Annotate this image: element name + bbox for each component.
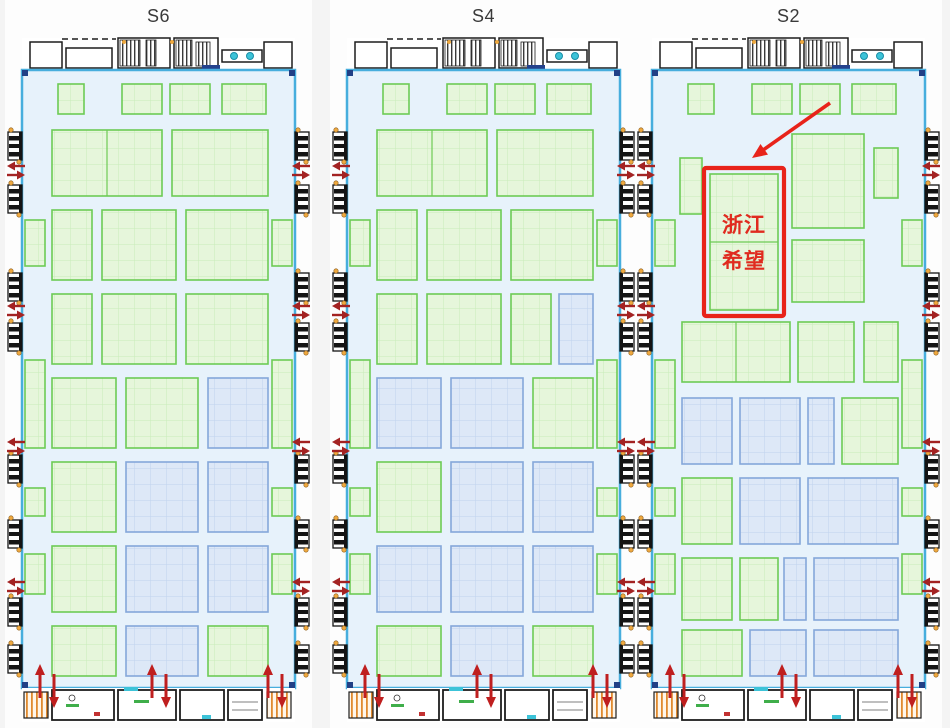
navy-fixture [527,65,545,69]
stairs-icon [267,692,291,718]
booth [383,84,409,114]
door-icon [925,181,939,217]
door-icon [295,181,309,217]
booth [750,630,806,676]
booth [350,554,370,594]
door-icon [295,128,309,164]
door-icon [8,269,22,305]
booth [740,398,800,464]
booth [792,134,864,228]
stairs-icon [897,692,921,718]
top-facilities [652,38,925,70]
booth [597,554,617,594]
booth [52,210,92,280]
booth [350,220,370,266]
booth [682,398,732,464]
door-icon [333,594,347,630]
door-icon [295,594,309,630]
door-icon [295,451,309,487]
booth [52,462,116,532]
door-icon [8,451,22,487]
bottom-facilities [347,687,620,722]
booth [740,558,778,620]
booth [852,84,896,114]
booth [122,84,162,114]
booth [842,398,898,464]
booth [902,488,922,516]
booth [377,210,417,280]
door-icon [638,594,652,630]
door-icon [333,641,347,677]
booth [451,378,523,448]
door-icon [638,128,652,164]
door-icon [638,319,652,355]
hall-title-s6: S6 [6,6,311,27]
door-icon [620,641,634,677]
floorplan-s2: 浙江希望 [636,36,941,728]
booth [25,220,45,266]
booth [272,554,292,594]
door-icon [295,641,309,677]
booth [814,558,898,620]
booth [170,84,210,114]
door-icon [638,516,652,552]
stairs-icon [349,692,373,718]
booth [186,294,268,364]
door-icon [295,319,309,355]
door-icon [8,516,22,552]
booth [208,626,268,676]
booth [208,378,268,448]
booth [126,626,198,676]
booth [52,130,162,196]
door-icon [925,128,939,164]
booth [427,210,501,280]
booth [126,462,198,532]
door-icon [925,269,939,305]
booth [752,84,792,114]
booth [597,220,617,266]
booth [597,488,617,516]
booth [350,488,370,516]
booth [655,554,675,594]
door-icon [620,128,634,164]
booth [126,546,198,612]
door-icon [8,594,22,630]
booth [874,148,898,198]
booth [102,294,176,364]
door-icon [925,451,939,487]
booth [655,220,675,266]
door-icon [8,128,22,164]
booth [451,462,523,532]
stairs-icon [592,692,616,718]
restroom-fixture-icon [861,53,868,60]
booth [533,378,593,448]
booth [377,546,441,612]
booth [740,478,800,544]
booth [52,378,116,448]
door-icon [8,181,22,217]
booth [25,488,45,516]
booth [186,210,268,280]
booth [25,360,45,448]
booth [377,294,417,364]
stairs-icon [654,692,678,718]
door-icon [925,319,939,355]
door-icon [925,516,939,552]
booth [814,630,898,676]
door-icon [295,269,309,305]
booth [680,158,702,214]
booth [272,220,292,266]
booth [792,240,864,302]
booth [25,554,45,594]
booth [511,210,593,280]
booth [495,84,535,114]
booth [682,478,732,544]
booth [688,84,714,114]
booth [547,84,591,114]
booth [350,360,370,448]
booth [377,626,441,676]
door-icon [333,319,347,355]
booth [427,294,501,364]
top-facilities [347,38,620,70]
booth [272,488,292,516]
booth [377,378,441,448]
door-icon [925,594,939,630]
booth [451,626,523,676]
booth [447,84,487,114]
booth [559,294,593,364]
door-icon [638,269,652,305]
door-icon [333,516,347,552]
door-icon [925,641,939,677]
navy-fixture [832,65,850,69]
booth [655,488,675,516]
door-icon [620,451,634,487]
restroom-fixture-icon [556,53,563,60]
booth [864,322,898,382]
hall-title-s4: S4 [331,6,636,27]
booth [533,626,593,676]
door-icon [638,181,652,217]
stairs-icon [24,692,48,718]
booth [902,360,922,448]
restroom-fixture-icon [877,53,884,60]
door-icon [333,269,347,305]
navy-fixture [202,65,220,69]
door-icon [295,516,309,552]
door-icon [620,319,634,355]
bottom-facilities [652,687,925,722]
booth [533,462,593,532]
booth [451,546,523,612]
booth [682,322,790,382]
restroom-fixture-icon [572,53,579,60]
booth [808,398,834,464]
booth [655,360,675,448]
door-icon [638,641,652,677]
booth [511,294,551,364]
booth [52,294,92,364]
booth [377,130,487,196]
door-icon [620,269,634,305]
booth [784,558,806,620]
door-icon [620,181,634,217]
booth [533,546,593,612]
door-icon [620,516,634,552]
door-icon [8,641,22,677]
booth [682,630,742,676]
booth [682,558,732,620]
booth [208,546,268,612]
door-icon [333,451,347,487]
booth [902,220,922,266]
restroom-fixture-icon [247,53,254,60]
booth [208,462,268,532]
door-icon [638,451,652,487]
booth [710,174,778,310]
door-icon [8,319,22,355]
top-facilities [22,38,295,70]
floorplan-s4 [331,36,636,728]
door-icon [620,594,634,630]
booth [222,84,266,114]
door-icon [333,181,347,217]
booth [808,478,898,544]
booth [58,84,84,114]
booth [597,360,617,448]
booth [126,378,198,448]
door-icon [333,128,347,164]
bottom-facilities [22,687,295,722]
booth [497,130,593,196]
booth [52,626,116,676]
booth [798,322,854,382]
booth [902,554,922,594]
booth [377,462,441,532]
booth [172,130,268,196]
floorplan-s6 [6,36,311,728]
booth [102,210,176,280]
booth [272,360,292,448]
restroom-fixture-icon [231,53,238,60]
booth [52,546,116,612]
hall-title-s2: S2 [636,6,941,27]
